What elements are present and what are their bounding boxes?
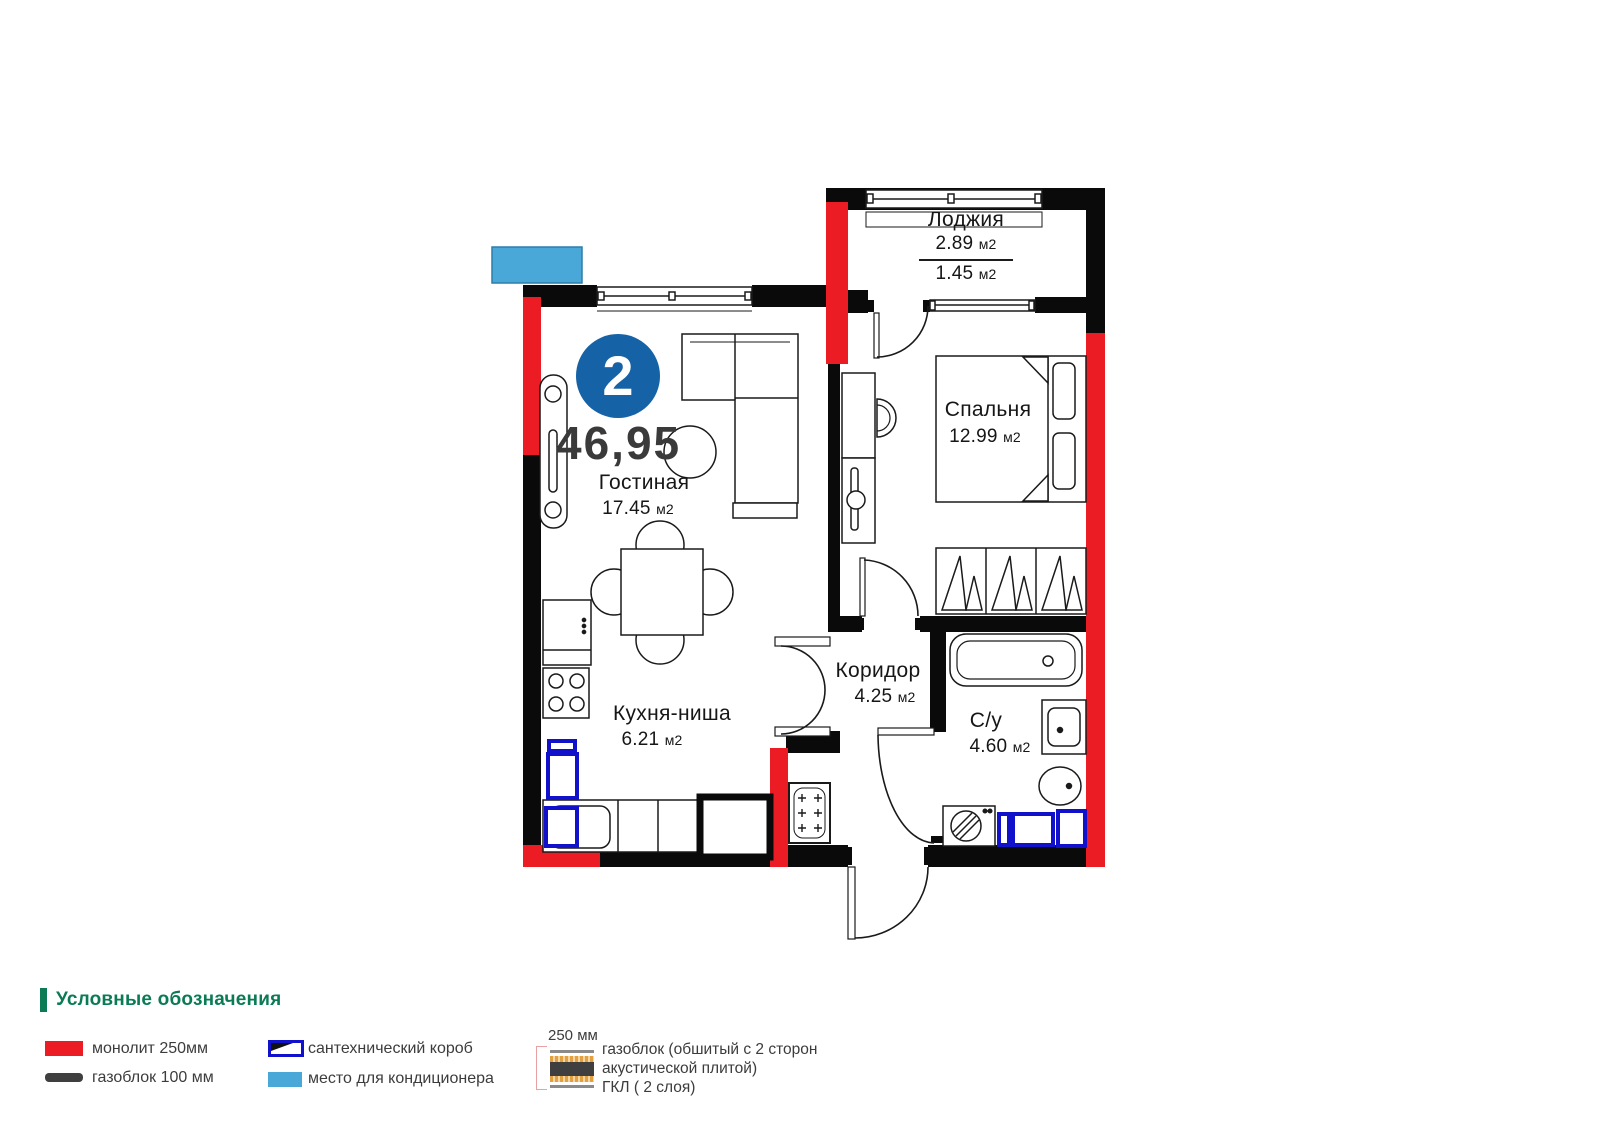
room-area-kitchen: 6.21 м2 xyxy=(621,729,682,751)
legend-gkl-bracket xyxy=(536,1046,547,1090)
room-label-kitchen: Кухня-ниша xyxy=(613,702,731,726)
room-label-corridor: Коридор xyxy=(835,659,920,683)
legend-swatch-ac-place xyxy=(268,1072,302,1087)
room-area-bathroom: 4.60 м2 xyxy=(969,736,1030,758)
unit-rooms-badge: 2 xyxy=(576,334,660,418)
loggia-fraction-line xyxy=(919,259,1013,261)
room-area-loggia-coef: 1.45 м2 xyxy=(935,263,996,285)
bedroom-furniture xyxy=(842,356,1086,614)
legend-swatch-monolith xyxy=(45,1041,83,1056)
floor-plan-drawing xyxy=(0,0,1600,1131)
room-label-bathroom: С/у xyxy=(970,709,1002,733)
legend-title-bar xyxy=(40,988,47,1012)
room-area-bedroom: 12.99 м2 xyxy=(949,426,1021,448)
legend-swatch-plumbing-box xyxy=(268,1040,304,1057)
plumbing-box-wedge-icon xyxy=(271,1043,293,1051)
room-area-corridor: 4.25 м2 xyxy=(854,686,915,708)
room-area-loggia-full: 2.89 м2 xyxy=(935,233,996,255)
total-area-label: 46,95 xyxy=(556,416,681,470)
legend-label-gasblock: газоблок 100 мм xyxy=(92,1069,214,1087)
room-area-living: 17.45 м2 xyxy=(602,498,674,520)
unit-rooms-count: 2 xyxy=(602,348,633,404)
legend-swatch-gasblock xyxy=(45,1073,83,1082)
legend-label-monolith: монолит 250мм xyxy=(92,1040,208,1058)
ac-unit-marker xyxy=(492,247,582,283)
legend-label-ac-place: место для кондиционера xyxy=(308,1070,494,1088)
floor-plan-page: 2 46,95 Лоджия 2.89 м2 1.45 м2 Спальня 1… xyxy=(0,0,1600,1131)
legend-title: Условные обозначения xyxy=(56,989,281,1011)
room-label-living: Гостиная xyxy=(599,471,690,495)
room-label-loggia: Лоджия xyxy=(928,208,1004,232)
legend-label-plumbing-box: сантехнический короб xyxy=(308,1040,473,1058)
legend-label-gkl: газоблок (обшитый с 2 сторон акустическо… xyxy=(602,1040,817,1097)
room-label-bedroom: Спальня xyxy=(945,398,1031,422)
legend-swatch-gkl xyxy=(550,1050,594,1088)
legend-gkl-size: 250 мм xyxy=(548,1027,598,1044)
